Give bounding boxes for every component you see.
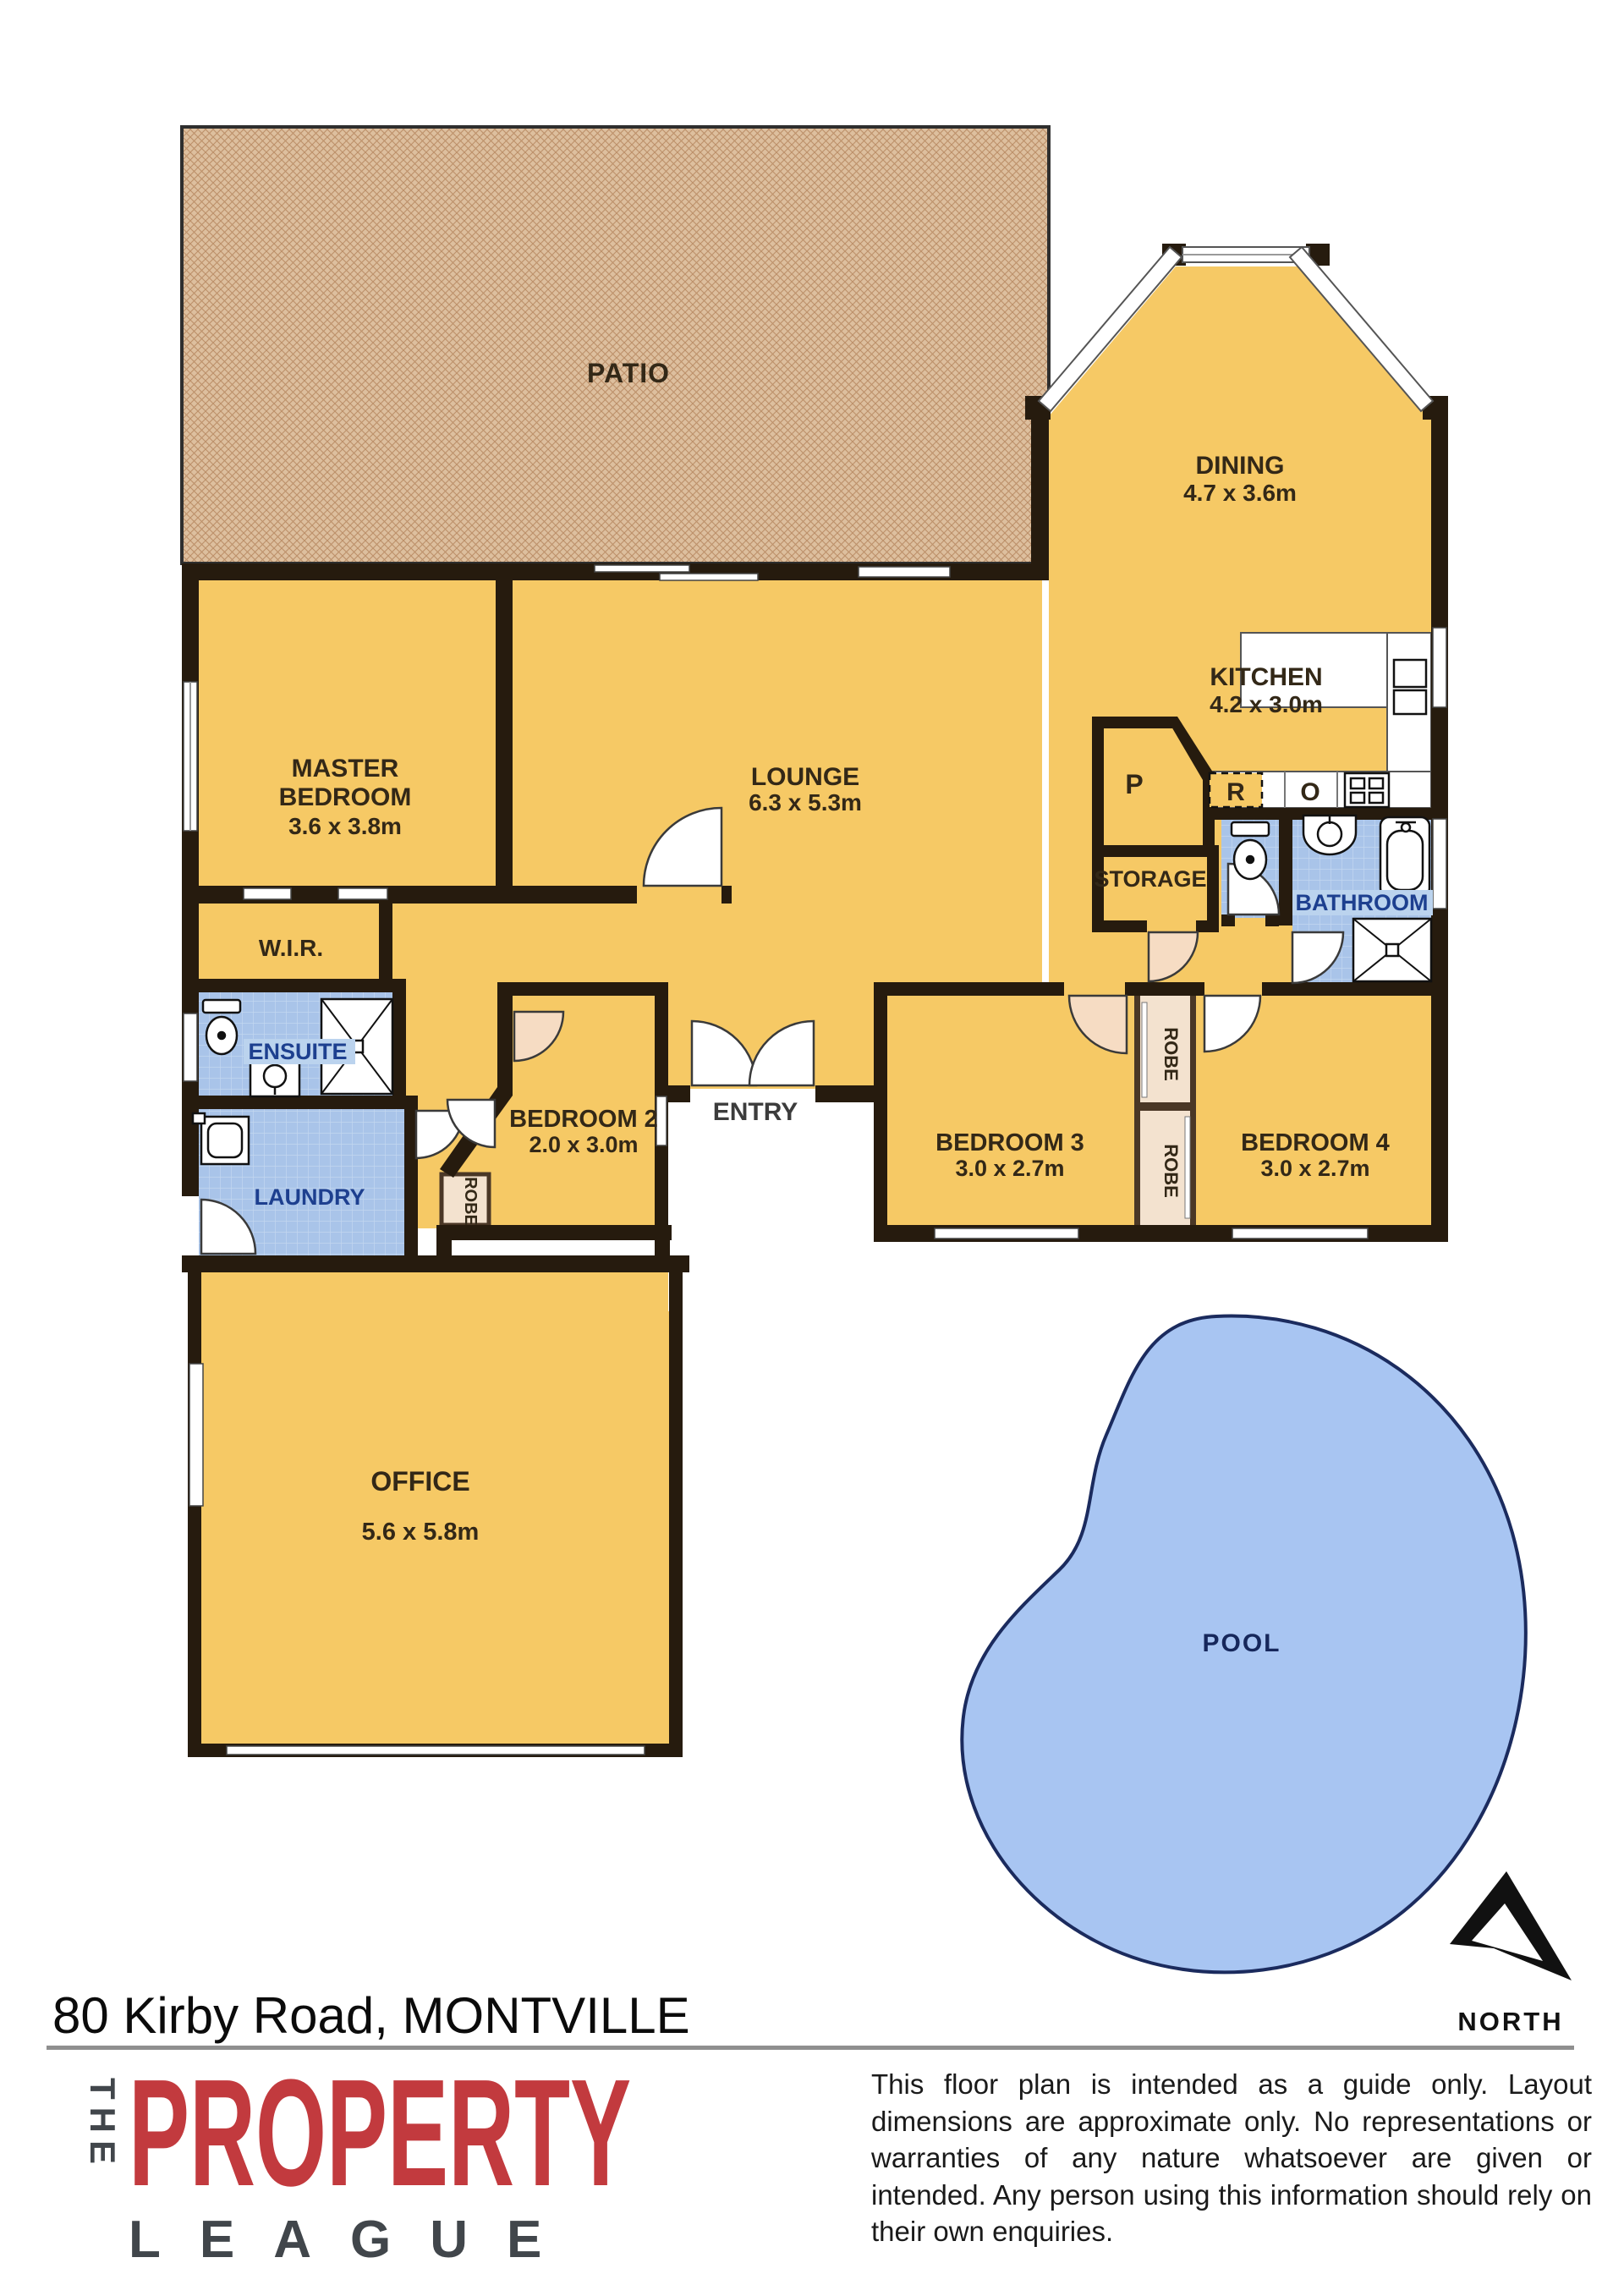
bedroom4-label: BEDROOM 4 xyxy=(1241,1129,1390,1156)
wall-office-right xyxy=(669,1261,683,1757)
north-label: NORTH xyxy=(1457,2007,1563,2036)
office-dims: 5.6 x 5.8m xyxy=(362,1519,480,1546)
cooktop-icon xyxy=(1345,773,1389,807)
toilet-wc-icon xyxy=(1232,822,1269,879)
master-label-2: BEDROOM xyxy=(279,783,412,811)
pantry-label: P xyxy=(1125,769,1143,799)
basin-ensuite-icon xyxy=(250,1061,299,1096)
wall-storage-bottom-b xyxy=(1196,920,1219,932)
logo-league: LEAGUE xyxy=(129,2210,966,2270)
wall-storage-right xyxy=(1207,845,1219,932)
wall-west xyxy=(182,563,199,1267)
logo-the: THE xyxy=(85,2078,120,2222)
wall-storage-bottom-a xyxy=(1092,920,1147,932)
lounge-dims: 6.3 x 5.3m xyxy=(749,789,862,816)
sink-icon xyxy=(1394,660,1426,714)
wall-bed3-left xyxy=(874,982,887,1239)
wall-master-lounge xyxy=(496,563,513,898)
logo-column: PROPERTY LEAGUE xyxy=(129,2071,966,2270)
robe2-slider xyxy=(1185,1117,1190,1218)
compass: NORTH xyxy=(1450,1871,1572,2036)
floor-plan-page: PATIO xyxy=(0,0,1624,2296)
entry-porch-floor xyxy=(668,1100,874,1311)
window-office-left xyxy=(189,1364,203,1506)
room-patio: PATIO xyxy=(182,127,1049,563)
wall-office-left xyxy=(188,1261,201,1757)
entry-label: ENTRY xyxy=(713,1098,798,1126)
robe-wall-mid xyxy=(1134,1102,1196,1111)
wall-storage-top xyxy=(1092,845,1219,857)
kitchen-dims: 4.2 x 3.0m xyxy=(1210,691,1323,717)
wall-ensuite-top xyxy=(182,979,404,992)
wall-bed2-bottom xyxy=(436,1225,672,1240)
bedroom4-dims: 3.0 x 2.7m xyxy=(1260,1156,1369,1181)
opening-bed4-door xyxy=(1204,982,1262,996)
wall-wir-right xyxy=(379,898,392,991)
wall-wc-bath-divider xyxy=(1279,819,1292,926)
wall-wc-bottom-b xyxy=(1265,915,1279,926)
bedroom3-label: BEDROOM 3 xyxy=(935,1129,1084,1156)
wall-wc-bottom-a xyxy=(1221,915,1235,926)
logo-property: PROPERTY xyxy=(129,2071,631,2196)
master-label-1: MASTER xyxy=(292,755,399,783)
slider-patio-2 xyxy=(859,567,950,577)
bathtub-icon xyxy=(1380,817,1429,897)
pool-label: POOL xyxy=(1202,1629,1281,1657)
robe1-slider xyxy=(1142,1002,1147,1097)
window-bed3 xyxy=(935,1228,1078,1239)
disclaimer-text: This floor plan is intended as a guide o… xyxy=(871,2066,1592,2250)
storage-label: STORAGE xyxy=(1094,866,1206,892)
property-address: 80 Kirby Road, MONTVILLE xyxy=(52,1986,690,2045)
laundry-label: LAUNDRY xyxy=(255,1184,365,1210)
basin-bathroom-icon xyxy=(1303,816,1356,854)
wall-dining-left xyxy=(1031,407,1049,580)
opening-bed3-door xyxy=(1064,982,1125,996)
wall-pantry-top xyxy=(1092,717,1172,728)
wir-label: W.I.R. xyxy=(259,935,323,961)
wall-house-bottom-left xyxy=(182,1255,689,1272)
pool: POOL xyxy=(962,1316,1526,1973)
oven-label: O xyxy=(1300,778,1319,806)
refrigerator-label: R xyxy=(1226,778,1245,806)
wall-bed2-top xyxy=(497,982,668,996)
lounge-label: LOUNGE xyxy=(751,763,859,791)
dining-dims: 4.7 x 3.6m xyxy=(1183,480,1297,506)
dining-label: DINING xyxy=(1196,452,1285,480)
wall-ensuite-laundry xyxy=(182,1096,404,1109)
bedroom2-label: BEDROOM 2 xyxy=(509,1106,658,1133)
robe1-label: ROBE xyxy=(1160,1027,1182,1081)
office-label: OFFICE xyxy=(370,1466,469,1497)
ensuite-label: ENSUITE xyxy=(248,1039,347,1064)
opening-master-door xyxy=(637,886,721,904)
opening-laundry-door xyxy=(182,1196,199,1255)
laundry-tub-icon xyxy=(193,1113,249,1164)
window-ensuite xyxy=(184,1013,197,1081)
kitchen-label: KITCHEN xyxy=(1210,663,1322,691)
window-kitchen-east xyxy=(1433,628,1446,707)
window-office-bottom xyxy=(227,1746,645,1755)
wall-ensuite-right xyxy=(392,979,406,1106)
agency-logo: THE PROPERTY LEAGUE xyxy=(85,2071,966,2270)
robe2-label: ROBE xyxy=(1160,1144,1182,1198)
bedroom3-dims: 3.0 x 2.7m xyxy=(955,1156,1064,1181)
bedroom2-dims: 2.0 x 3.0m xyxy=(529,1132,638,1157)
patio-label: PATIO xyxy=(587,358,670,388)
window-bed4 xyxy=(1232,1228,1368,1239)
master-dims: 3.6 x 3.8m xyxy=(288,813,402,839)
wall-pantry-left xyxy=(1092,717,1104,857)
patio-floor xyxy=(182,127,1049,563)
robe3-label: ROBE xyxy=(461,1177,480,1226)
wir-slider-2 xyxy=(338,888,387,899)
shower-bathroom-icon xyxy=(1353,919,1431,981)
floor-office xyxy=(188,1261,683,1745)
wall-bed2-left xyxy=(497,982,513,1096)
bathroom-label: BATHROOM xyxy=(1296,890,1429,915)
window-bathroom-east xyxy=(1433,819,1446,909)
wir-slider-1 xyxy=(244,888,291,899)
floor-plan-canvas: PATIO xyxy=(0,0,1624,2296)
toilet-ensuite-icon xyxy=(203,1000,240,1054)
